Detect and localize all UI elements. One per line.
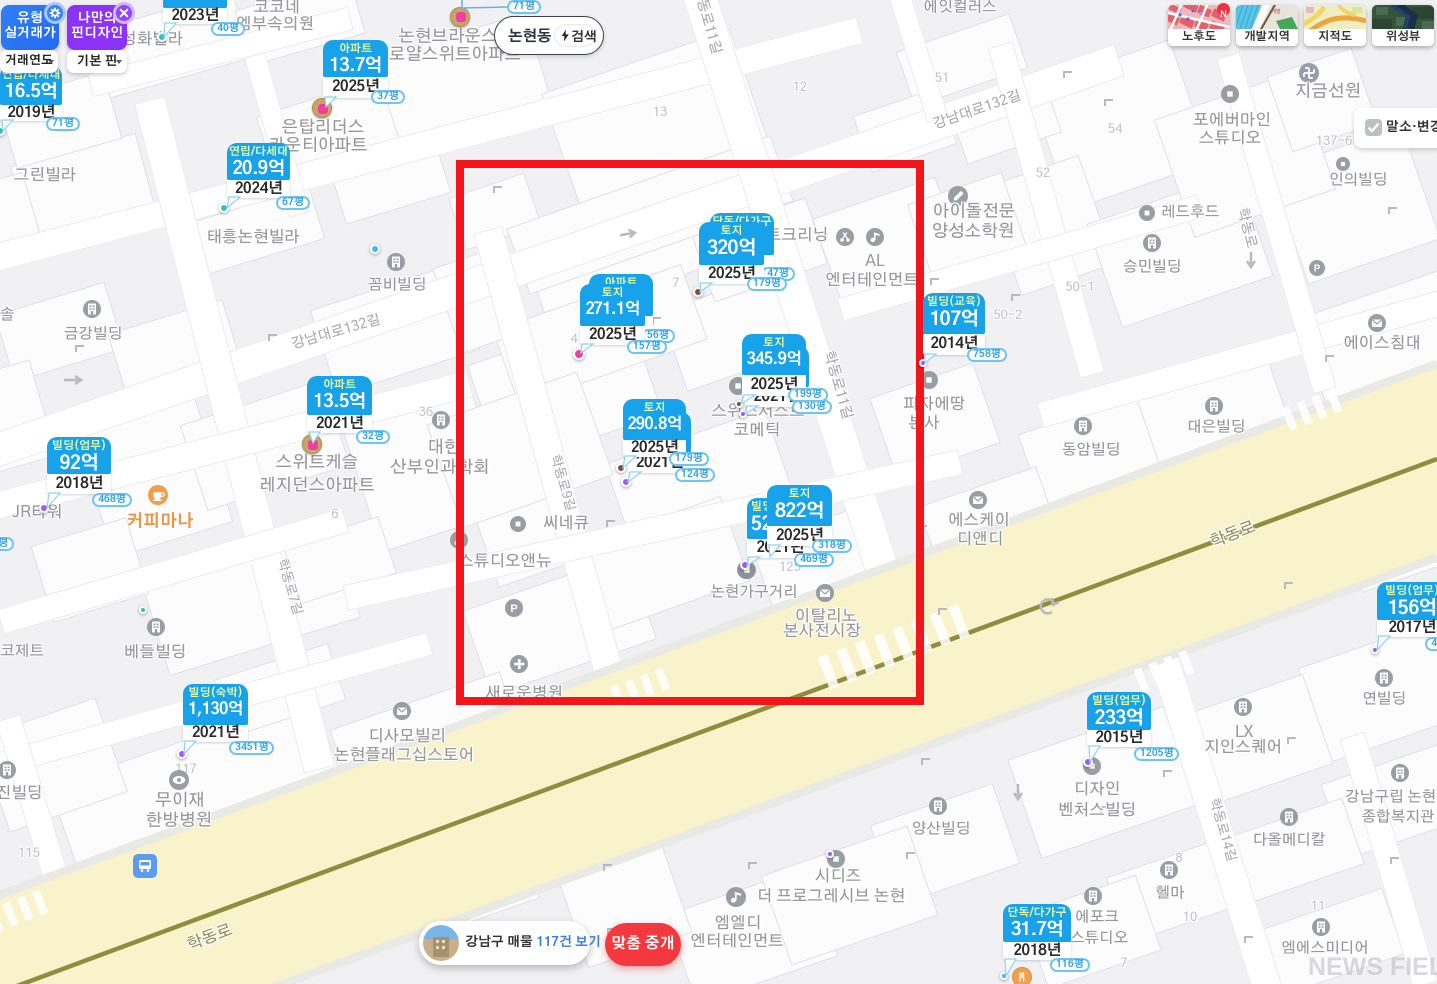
svg-text:P: P xyxy=(1314,264,1321,275)
svg-text:개발: 개발 xyxy=(1271,8,1281,15)
